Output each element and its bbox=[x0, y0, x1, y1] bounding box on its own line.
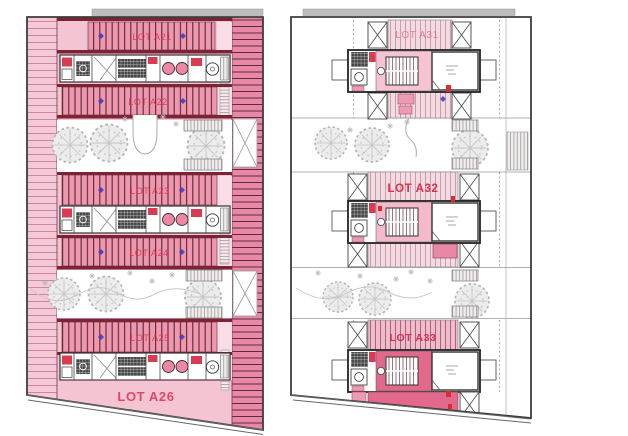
cross-brace-icon bbox=[348, 322, 367, 348]
cross-brace-icon bbox=[368, 22, 387, 48]
unit-core-a33 bbox=[332, 350, 496, 392]
west-parking-band bbox=[27, 17, 57, 432]
red-marker bbox=[451, 196, 455, 202]
tree-icon bbox=[355, 128, 389, 162]
tree-icon bbox=[48, 278, 80, 310]
lot-a22-label: LOT A22 bbox=[128, 97, 168, 107]
grating-icon bbox=[507, 132, 528, 170]
lot-a21-label: LOT A21 bbox=[132, 32, 172, 42]
cross-brace-icon bbox=[460, 392, 479, 418]
lot-a32-label: LOT A32 bbox=[387, 183, 438, 195]
ramp-icon bbox=[233, 119, 257, 167]
cross-brace-icon bbox=[460, 241, 479, 267]
roof-canopy-bar bbox=[303, 9, 515, 16]
lot-a31-label: LOT A31 bbox=[395, 30, 439, 41]
grating-icon bbox=[186, 270, 222, 281]
cross-brace-icon bbox=[452, 22, 471, 48]
red-marker bbox=[446, 85, 451, 92]
ramp-icon bbox=[233, 271, 257, 316]
red-marker bbox=[446, 391, 451, 397]
deck-lot-a31-south bbox=[388, 92, 452, 118]
grating-icon bbox=[184, 120, 222, 131]
unit-core-a31 bbox=[332, 50, 496, 92]
grating-icon bbox=[186, 307, 222, 318]
red-marker bbox=[378, 206, 382, 211]
cross-brace-icon bbox=[452, 93, 471, 119]
floor-plan-page: LOT A21 LOT A22 LOT A23 LOT A24 LOT A25 … bbox=[0, 0, 628, 436]
floor-plan-drawing: LOT A21 LOT A22 LOT A23 LOT A24 LOT A25 … bbox=[0, 0, 628, 436]
tree-icon bbox=[91, 125, 128, 162]
grating-icon bbox=[452, 158, 478, 169]
red-marker bbox=[448, 404, 452, 409]
right-floor-plan: LOT A31 LOT A32 LOT A33 bbox=[291, 9, 531, 423]
tree-icon bbox=[315, 127, 347, 159]
unit-core-a32 bbox=[332, 201, 496, 243]
cross-brace-icon bbox=[348, 174, 367, 200]
core-strip-3 bbox=[60, 353, 230, 380]
grating-icon bbox=[452, 270, 478, 281]
cross-brace-icon bbox=[348, 241, 367, 267]
core-strip-2 bbox=[60, 206, 230, 233]
left-floor-plan: LOT A21 LOT A22 LOT A23 LOT A24 LOT A25 … bbox=[27, 9, 263, 435]
lot-a25-label: LOT A25 bbox=[130, 333, 170, 343]
grating-icon bbox=[452, 120, 478, 131]
pond-icon bbox=[133, 115, 157, 154]
lot-a26-label: LOT A26 bbox=[117, 389, 174, 404]
cross-brace-icon bbox=[368, 93, 387, 119]
roof-canopy-bar bbox=[92, 9, 263, 16]
east-parking-band bbox=[232, 17, 263, 432]
cross-brace-icon bbox=[460, 322, 479, 348]
lot-a24-label: LOT A24 bbox=[129, 248, 169, 258]
grating-icon bbox=[452, 306, 478, 317]
lot-a23-label: LOT A23 bbox=[130, 186, 170, 196]
grating-icon bbox=[184, 159, 222, 170]
core-strip-1 bbox=[60, 55, 230, 82]
tree-icon bbox=[53, 128, 88, 163]
cross-brace-icon bbox=[460, 174, 479, 200]
lot-a33-label: LOT A33 bbox=[390, 332, 437, 344]
